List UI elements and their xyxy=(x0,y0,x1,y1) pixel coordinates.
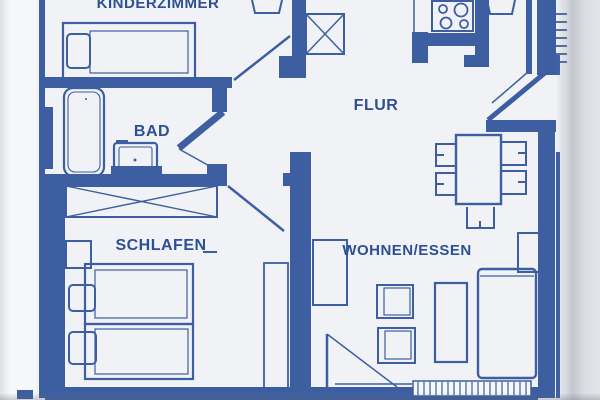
tall-cabinet-icon xyxy=(264,263,288,390)
bathtub-icon xyxy=(64,88,104,176)
dining-chair-icon xyxy=(502,142,526,165)
outer-wall-left-pier xyxy=(39,107,53,169)
dining-chair-icon xyxy=(467,207,494,228)
room-label-schlafen: SCHLAFEN xyxy=(115,237,206,254)
single-bed-icon-kinderzimmer xyxy=(63,23,195,80)
chair-icon-kinderzimmer xyxy=(252,0,282,13)
wall-center-mid xyxy=(290,152,311,400)
wall-top-right-thin xyxy=(526,0,532,74)
wall-kinderzimmer-south xyxy=(39,77,232,88)
shaft-crossed-box-icon xyxy=(306,14,344,54)
bay-wall-diagonal xyxy=(488,72,546,120)
wall-center-top xyxy=(292,0,306,78)
dining-chair-icon xyxy=(436,144,456,166)
double-bed-icon xyxy=(69,264,193,379)
kitchen-counter-right xyxy=(475,0,489,56)
armchair-icon xyxy=(377,285,413,318)
outer-wall-right-edge-line xyxy=(556,152,560,398)
door-swing-icon-bad xyxy=(179,149,222,173)
room-label-bad: BAD xyxy=(134,123,170,140)
wall-center-top-foot xyxy=(279,56,293,78)
pillow-icon xyxy=(69,285,95,311)
wardrobe-crossed-icon xyxy=(66,186,217,217)
dining-set xyxy=(436,135,526,228)
wall-bad-east-upper xyxy=(212,78,227,112)
door-swings xyxy=(116,36,546,387)
wall-top-right-corner xyxy=(537,55,560,75)
kitchen-counter-left xyxy=(412,32,428,63)
chair-icon-kitchen xyxy=(487,0,515,14)
armchair-icon xyxy=(378,328,415,363)
sideboard-icon xyxy=(518,233,539,272)
bay-wall-diagonal-inner xyxy=(492,72,528,103)
stair-hatch-icon xyxy=(554,14,567,62)
bottom-left-wall-mark xyxy=(17,390,33,399)
dining-chair-icon xyxy=(502,171,526,194)
kitchen-counter-foot xyxy=(464,55,489,67)
outer-wall-right xyxy=(538,120,555,398)
dining-chair-icon xyxy=(436,173,456,195)
stove-hob-icon xyxy=(414,0,473,32)
floor-plan-drawing: KINDERZIMMER BAD FLUR SCHLAFEN WOHNEN/ES… xyxy=(0,0,600,400)
door-leaf-icon-bad xyxy=(179,112,223,148)
sofa-icon xyxy=(478,269,536,378)
floor-plan-page: KINDERZIMMER BAD FLUR SCHLAFEN WOHNEN/ES… xyxy=(0,0,600,400)
balcony-threshold-hatch-icon xyxy=(413,381,531,396)
room-label-wohnen-essen: WOHNEN/ESSEN xyxy=(342,242,471,259)
pillow-icon xyxy=(69,332,96,364)
door-swing-icon-schlafen xyxy=(228,186,284,231)
washbasin-icon xyxy=(114,143,157,172)
balcony-door-swing-icon xyxy=(327,334,397,387)
room-label-flur: FLUR xyxy=(354,97,399,114)
dining-table-icon xyxy=(456,135,501,204)
coffee-table-icon xyxy=(435,283,467,362)
outer-wall-left xyxy=(39,0,45,398)
wall-center-step xyxy=(283,173,291,186)
pillow-icon xyxy=(67,34,90,68)
outer-wall-left-thick xyxy=(45,176,65,398)
kitchen-counter-front xyxy=(428,33,483,46)
room-label-kinderzimmer: KINDERZIMMER xyxy=(97,0,220,12)
